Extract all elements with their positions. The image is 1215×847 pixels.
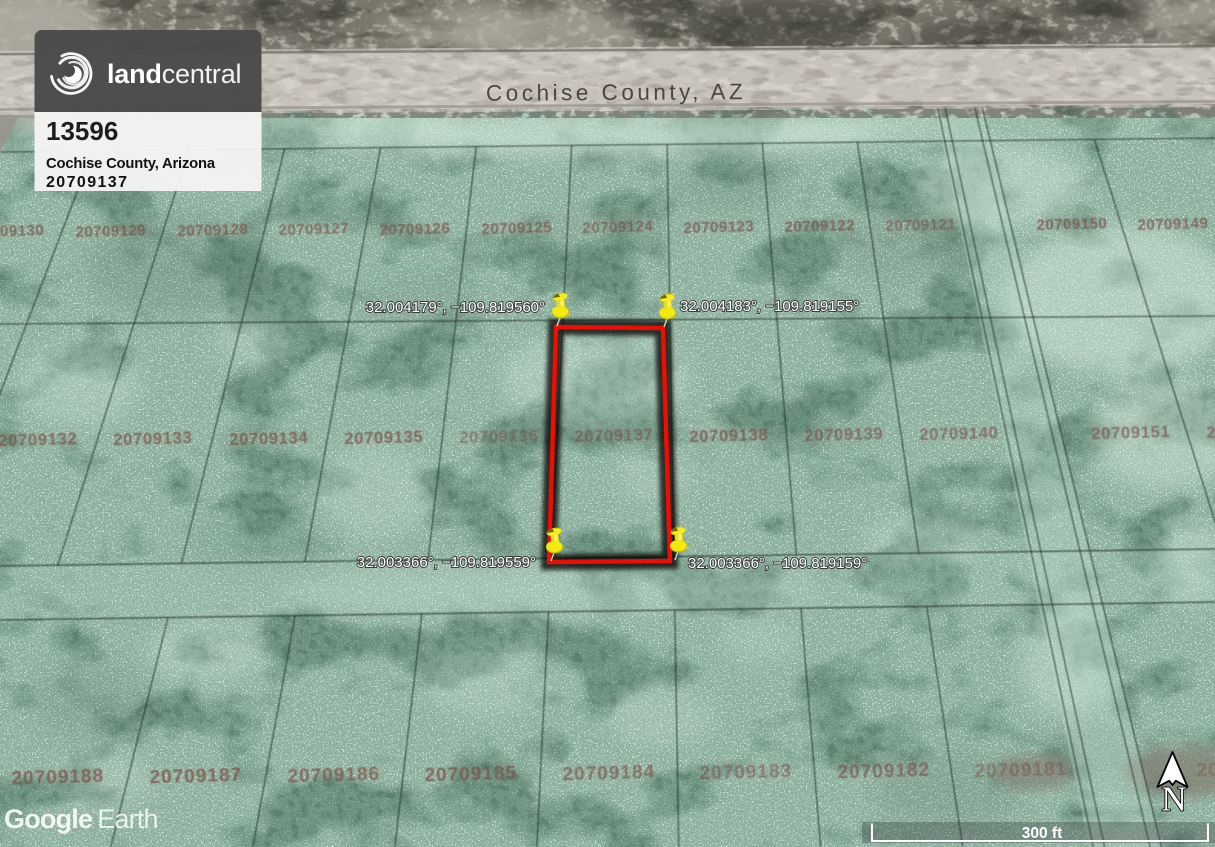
svg-text:GoogleEarth: GoogleEarth (4, 804, 158, 834)
svg-text:20709183: 20709183 (699, 761, 792, 785)
svg-text:20709188: 20709188 (11, 766, 104, 790)
svg-text:20709136: 20709136 (459, 427, 538, 447)
svg-text:20709195: 20709195 (1196, 758, 1215, 782)
svg-text:20709132: 20709132 (0, 430, 78, 450)
svg-text:20709121: 20709121 (885, 216, 956, 235)
svg-text:20709134: 20709134 (229, 429, 309, 449)
svg-text:landcentral: landcentral (107, 59, 241, 89)
svg-text:20709133: 20709133 (113, 429, 192, 449)
svg-text:20709137: 20709137 (574, 426, 653, 446)
svg-text:20709184: 20709184 (562, 762, 655, 786)
svg-text:32.004183°, −109.819155°: 32.004183°, −109.819155° (680, 298, 859, 315)
svg-text:13596: 13596 (46, 116, 118, 146)
svg-text:20709127: 20709127 (278, 220, 349, 239)
svg-text:300 ft: 300 ft (1022, 825, 1063, 842)
svg-text:20709140: 20709140 (919, 424, 998, 444)
svg-text:20709151: 20709151 (1091, 423, 1170, 443)
svg-text:Cochise County, Arizona: Cochise County, Arizona (46, 156, 216, 172)
svg-text:32.003366°, −109.819159°: 32.003366°, −109.819159° (688, 555, 867, 572)
svg-text:20709122: 20709122 (784, 217, 855, 236)
svg-text:20709135: 20709135 (344, 428, 423, 448)
svg-text:20709150: 20709150 (1036, 215, 1107, 234)
svg-text:20709124: 20709124 (582, 218, 653, 237)
svg-text:20709137: 20709137 (46, 174, 128, 191)
svg-text:20709181: 20709181 (974, 759, 1067, 783)
svg-text:20709125: 20709125 (481, 219, 552, 238)
svg-text:20709123: 20709123 (683, 218, 754, 237)
svg-text:20709186: 20709186 (287, 764, 380, 788)
svg-text:20709139: 20709139 (804, 425, 883, 445)
svg-text:20709126: 20709126 (379, 220, 450, 239)
svg-text:20709187: 20709187 (149, 765, 242, 789)
svg-text:Cochise County, AZ: Cochise County, AZ (486, 79, 746, 106)
svg-text:32.004179°, −109.819560°: 32.004179°, −109.819560° (366, 299, 545, 316)
svg-text:20709152: 20709152 (1206, 422, 1215, 442)
svg-text:20709149: 20709149 (1137, 215, 1208, 234)
svg-text:20709129: 20709129 (75, 222, 146, 241)
svg-text:20709185: 20709185 (424, 763, 517, 787)
svg-text:20709128: 20709128 (177, 221, 248, 240)
svg-text:20709130: 20709130 (0, 222, 44, 241)
svg-text:20709182: 20709182 (837, 760, 930, 784)
svg-text:20709138: 20709138 (689, 426, 768, 446)
svg-text:N: N (1161, 780, 1186, 819)
svg-text:32.003366°, −109.819559°: 32.003366°, −109.819559° (357, 554, 536, 571)
